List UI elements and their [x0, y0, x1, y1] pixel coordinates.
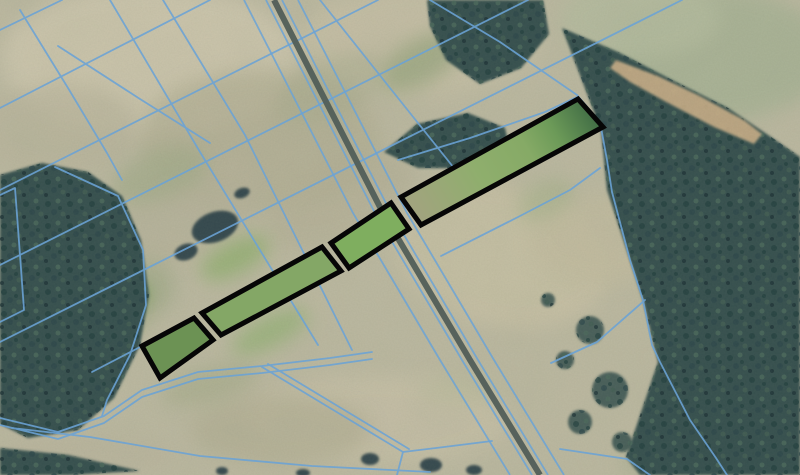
- map-viewport[interactable]: [0, 0, 800, 475]
- aerial-map[interactable]: [0, 0, 800, 475]
